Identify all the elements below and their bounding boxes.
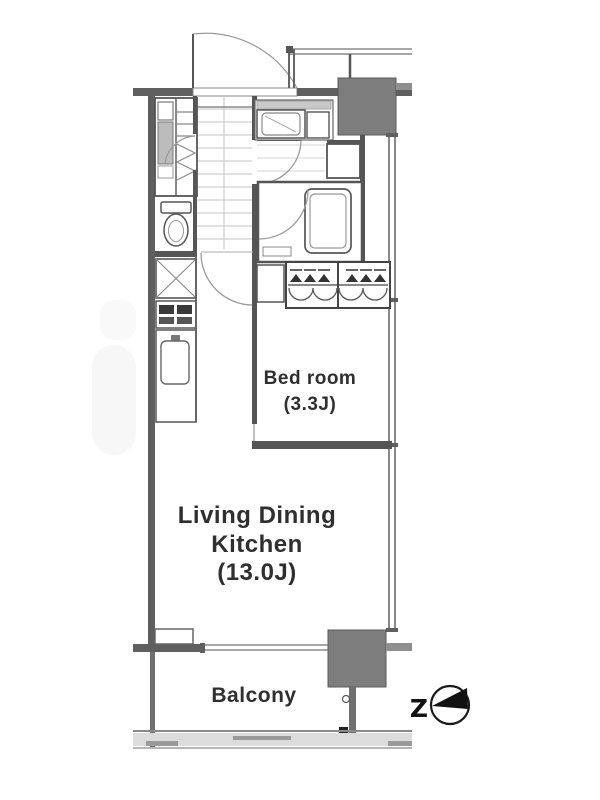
toilet-icon (161, 202, 191, 246)
right-window-wall (386, 133, 398, 632)
compass-letter: Z (410, 694, 428, 723)
balcony-sliding-window (200, 643, 333, 653)
balcony-label: Balcony (211, 684, 296, 707)
ldk-label-line1: Living Dining (178, 502, 336, 529)
refrigerator-space-icon (156, 259, 196, 298)
entrance-door-icon (193, 33, 297, 88)
washing-machine-pan-icon (255, 100, 333, 140)
wall-stub-top-right (396, 83, 412, 90)
bedroom-area-label: (3.3J) (284, 394, 337, 415)
bathroom (258, 182, 362, 262)
kitchen (156, 256, 196, 422)
pillar-bottom-right (328, 630, 386, 687)
left-wall (148, 96, 155, 646)
bathtub-icon (305, 189, 351, 253)
floorplan-svg: Bed room (3.3J) Living Dining Kitchen (1… (0, 0, 600, 800)
ldk-label-line2: Kitchen (211, 531, 303, 558)
closet-with-hangers-icon (257, 262, 390, 308)
ldk-area-label: (13.0J) (217, 559, 297, 586)
drain-icon (343, 696, 350, 703)
bottom-wall-left (133, 644, 203, 652)
floorplan-canvas: Bed room (3.3J) Living Dining Kitchen (1… (0, 0, 600, 800)
balcony-divider (349, 687, 356, 735)
north-arrow-compass-icon: Z (410, 686, 469, 724)
wash-basin-icon (327, 144, 360, 178)
watermark-ghost (92, 300, 136, 455)
balcony-outer-rail (133, 731, 412, 748)
wall-stub-bottom-right (386, 643, 412, 651)
window-return-box (155, 629, 193, 644)
bath-step (263, 247, 291, 256)
hall-ldk-door (201, 252, 253, 305)
stove-icon (156, 301, 196, 328)
washroom-door-arc (257, 140, 301, 184)
shoe-closet (155, 98, 197, 196)
pillar-top-right (338, 78, 396, 135)
entrance-threshold (193, 88, 297, 96)
ldk-door-arc (201, 253, 253, 305)
bedroom-label: Bed room (264, 368, 357, 389)
kitchen-sink-icon (156, 330, 196, 422)
top-wall-left (133, 88, 193, 96)
